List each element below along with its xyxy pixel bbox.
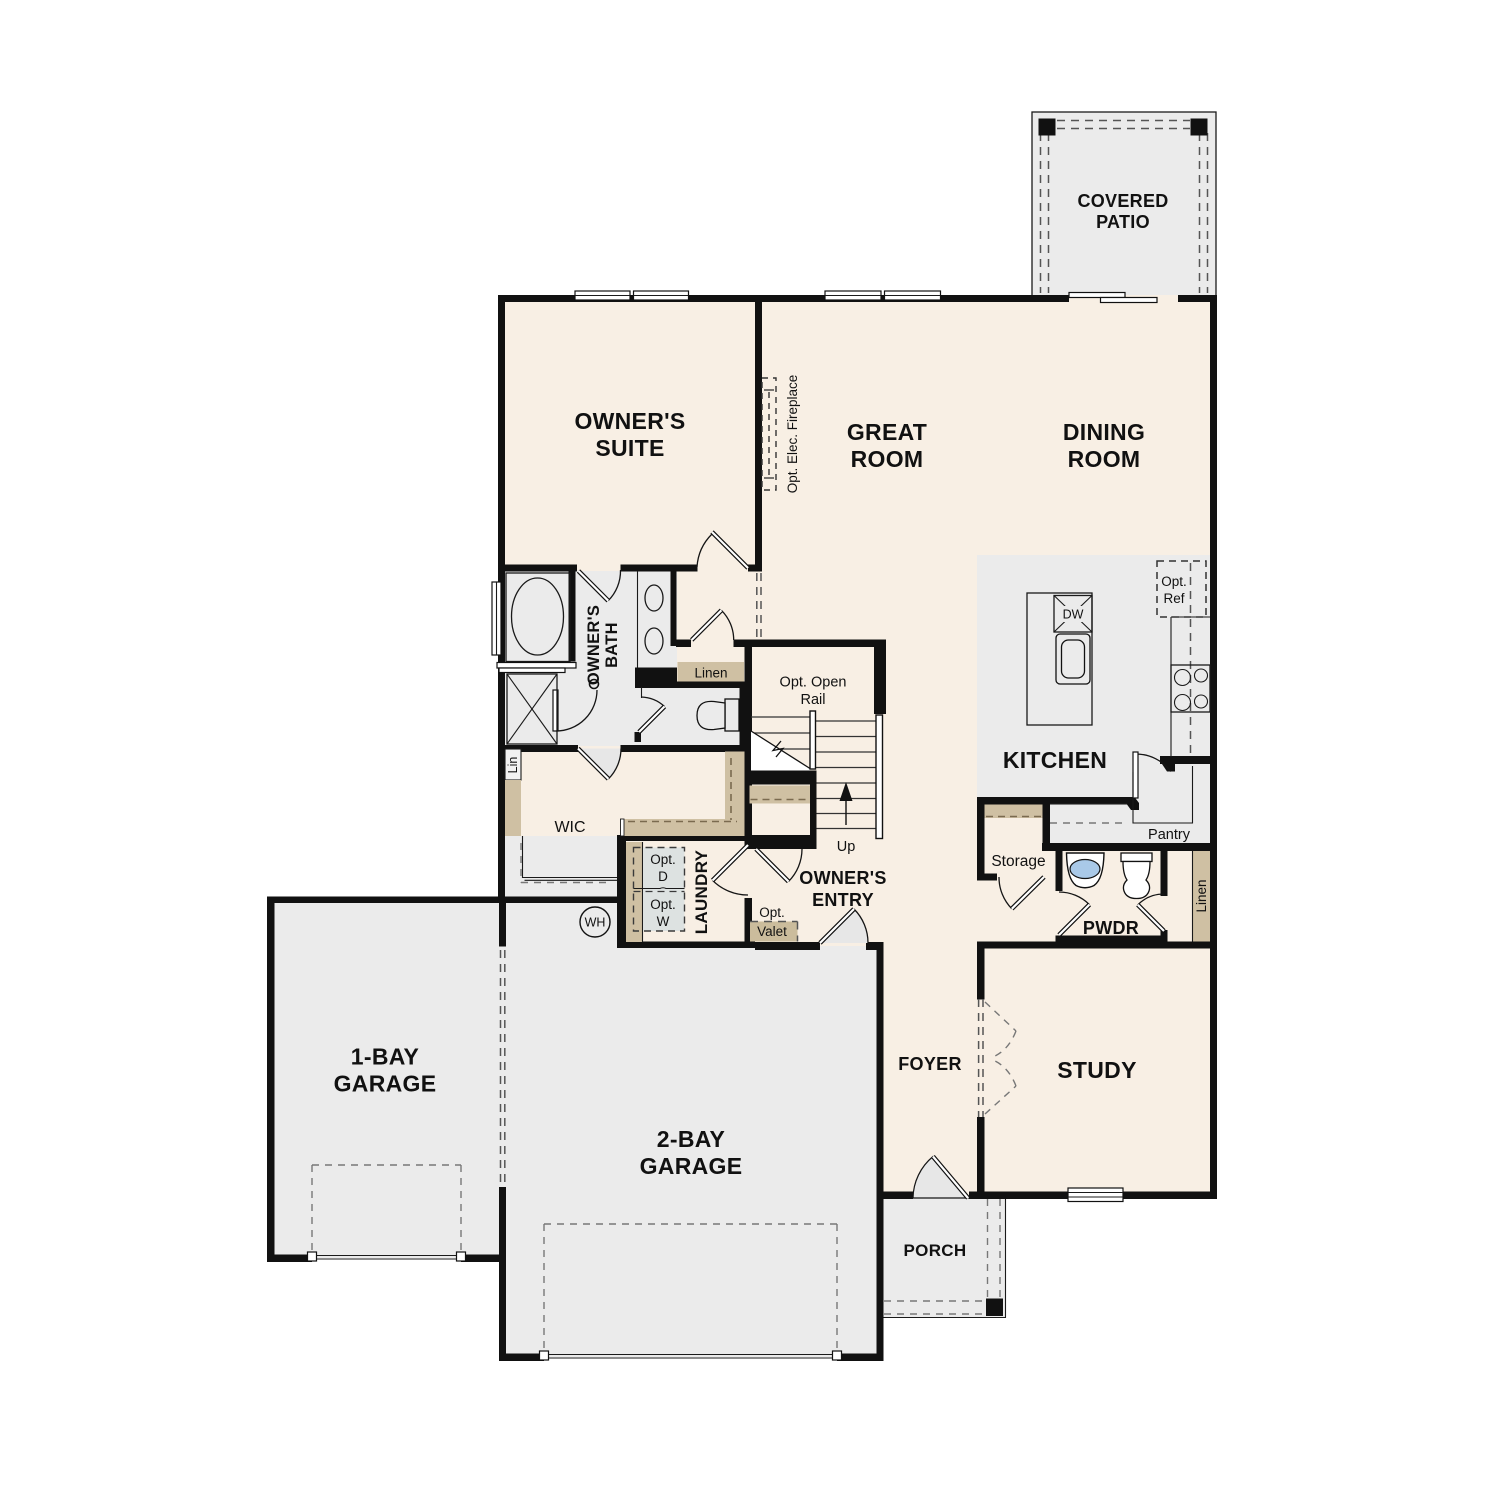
svg-text:STUDY: STUDY [1057, 1057, 1136, 1083]
svg-text:LAUNDRY: LAUNDRY [692, 849, 711, 934]
svg-text:OWNER'S: OWNER'S [585, 605, 603, 685]
svg-text:FOYER: FOYER [898, 1054, 962, 1074]
svg-text:1-BAY: 1-BAY [351, 1044, 419, 1070]
svg-text:Ref: Ref [1163, 591, 1184, 606]
svg-text:Opt.: Opt. [1161, 574, 1187, 589]
svg-text:KITCHEN: KITCHEN [1003, 747, 1107, 773]
svg-text:ENTRY: ENTRY [812, 890, 874, 910]
svg-text:Opt.: Opt. [650, 897, 676, 912]
svg-text:Opt.: Opt. [650, 852, 676, 867]
svg-text:WH: WH [585, 916, 606, 930]
svg-text:Up: Up [837, 839, 856, 855]
svg-text:BATH: BATH [603, 622, 621, 668]
svg-text:2-BAY: 2-BAY [657, 1126, 725, 1152]
svg-text:DW: DW [1063, 608, 1084, 622]
svg-text:Pantry: Pantry [1148, 827, 1191, 843]
svg-text:WIC: WIC [554, 819, 585, 836]
svg-text:Linen: Linen [694, 666, 727, 681]
svg-text:GARAGE: GARAGE [640, 1153, 743, 1179]
svg-text:Opt. Elec. Fireplace: Opt. Elec. Fireplace [785, 375, 800, 494]
svg-text:Linen: Linen [1194, 879, 1209, 912]
svg-text:OWNER'S: OWNER'S [574, 408, 685, 434]
svg-text:ROOM: ROOM [1068, 446, 1141, 472]
svg-text:Rail: Rail [801, 692, 826, 708]
svg-text:GARAGE: GARAGE [334, 1071, 437, 1097]
svg-text:W: W [657, 914, 670, 929]
svg-text:PATIO: PATIO [1096, 212, 1150, 232]
svg-text:COVERED: COVERED [1077, 191, 1168, 211]
svg-text:D: D [658, 869, 668, 884]
svg-text:PORCH: PORCH [904, 1241, 967, 1260]
svg-text:ROOM: ROOM [851, 446, 924, 472]
svg-text:OWNER'S: OWNER'S [799, 868, 886, 888]
svg-text:DINING: DINING [1063, 419, 1145, 445]
svg-text:Lin: Lin [506, 757, 520, 774]
svg-text:Opt.: Opt. [759, 905, 785, 920]
svg-text:Storage: Storage [991, 853, 1045, 870]
svg-text:PWDR: PWDR [1083, 918, 1139, 938]
svg-text:Opt. Open: Opt. Open [780, 675, 847, 691]
svg-text:SUITE: SUITE [595, 435, 664, 461]
svg-text:Valet: Valet [757, 924, 787, 939]
svg-text:GREAT: GREAT [847, 419, 927, 445]
